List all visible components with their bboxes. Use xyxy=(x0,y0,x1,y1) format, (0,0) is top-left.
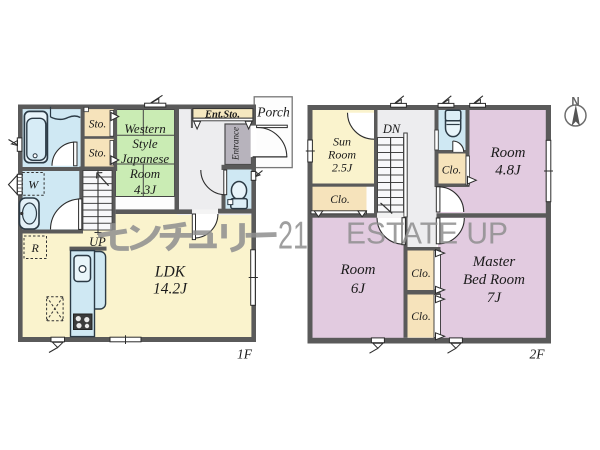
svg-text:2.5J: 2.5J xyxy=(332,161,353,175)
svg-text:Bed Room: Bed Room xyxy=(463,272,525,288)
svg-text:Room: Room xyxy=(129,166,160,181)
svg-text:W: W xyxy=(28,178,39,192)
svg-text:Clo.: Clo. xyxy=(411,311,431,323)
svg-text:UP: UP xyxy=(89,235,106,249)
svg-text:Porch: Porch xyxy=(256,105,290,120)
svg-text:Clo.: Clo. xyxy=(411,268,431,280)
svg-text:LDK: LDK xyxy=(154,263,186,280)
svg-text:Ent.Sto.: Ent.Sto. xyxy=(204,110,240,121)
svg-text:Entrance: Entrance xyxy=(231,127,241,161)
svg-text:Sun: Sun xyxy=(333,135,351,149)
svg-text:Room: Room xyxy=(327,148,356,162)
svg-text:Western: Western xyxy=(124,121,165,136)
svg-text:Room: Room xyxy=(340,262,376,278)
svg-text:4.3J: 4.3J xyxy=(134,182,157,197)
svg-text:Clo.: Clo. xyxy=(442,165,462,177)
svg-text:6J: 6J xyxy=(351,281,367,297)
svg-text:R: R xyxy=(31,241,40,255)
svg-text:Clo.: Clo. xyxy=(330,194,350,206)
svg-text:Style: Style xyxy=(132,136,157,151)
svg-text:Sto.: Sto. xyxy=(89,148,107,160)
svg-text:Room: Room xyxy=(490,145,526,161)
svg-text:Master: Master xyxy=(472,254,516,270)
svg-text:14.2J: 14.2J xyxy=(153,280,188,297)
svg-text:DN: DN xyxy=(382,122,401,136)
svg-text:N: N xyxy=(571,97,579,109)
svg-text:21: 21 xyxy=(278,215,308,258)
svg-text:4.8J: 4.8J xyxy=(495,163,522,179)
svg-text:2F: 2F xyxy=(530,347,546,362)
svg-text:ESTATE UP: ESTATE UP xyxy=(346,217,508,251)
svg-text:Japanese: Japanese xyxy=(121,151,170,166)
svg-text:1F: 1F xyxy=(237,347,253,362)
svg-text:7J: 7J xyxy=(487,290,503,306)
svg-text:Sto.: Sto. xyxy=(89,119,107,131)
